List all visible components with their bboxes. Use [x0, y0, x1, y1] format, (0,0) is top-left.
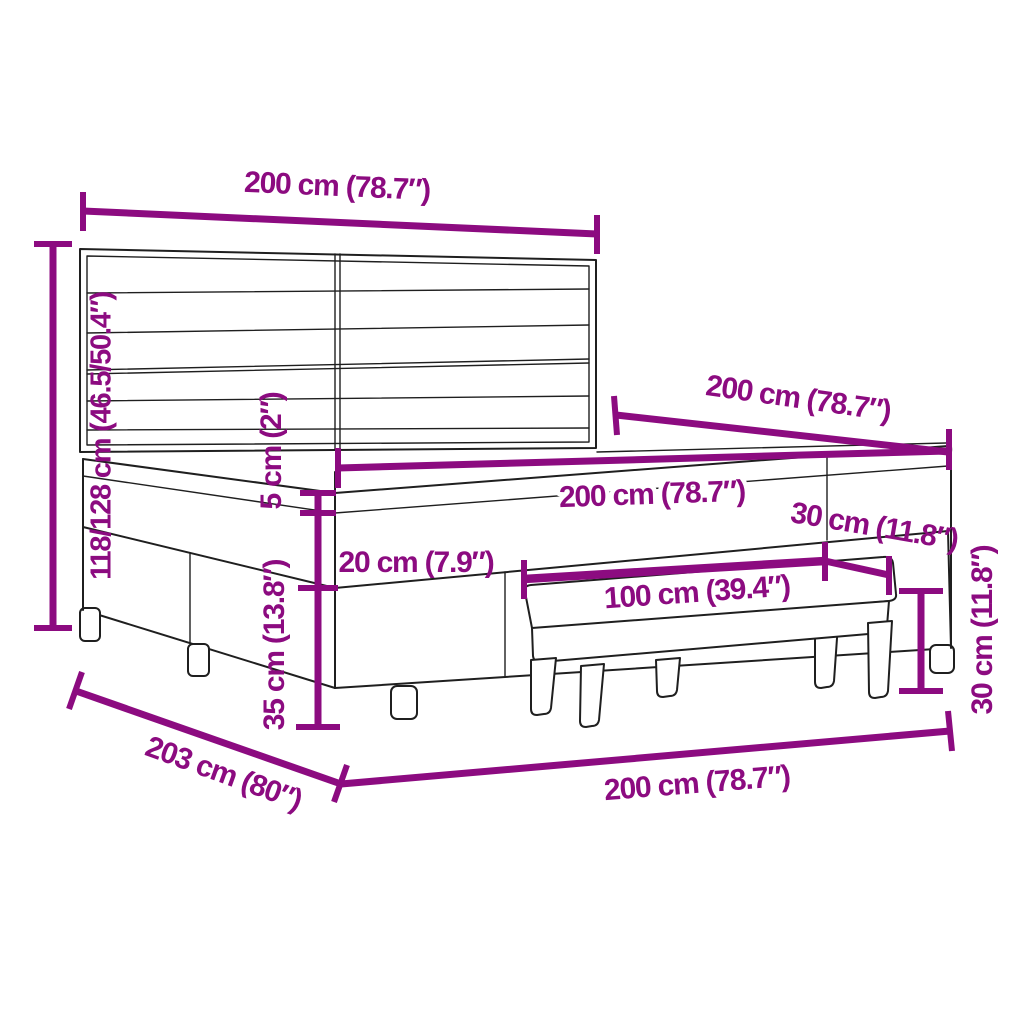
label-bed-height: 118/128 cm (46.5/50.4″) — [86, 292, 118, 580]
bench-leg — [868, 621, 892, 698]
bench-leg — [531, 658, 556, 715]
label-topper-thickness: 5 cm (2″) — [255, 392, 288, 509]
label-headboard-width: 200 cm (78.7″) — [243, 166, 430, 207]
bed-leg — [391, 686, 417, 719]
bed-structure — [80, 249, 954, 727]
headboard — [80, 249, 596, 452]
bed-dimension-diagram: 200 cm (78.7″) 118/128 cm (46.5/50.4″) 2… — [0, 0, 1024, 1024]
label-mattress-width: 200 cm (78.7″) — [558, 475, 745, 514]
label-bed-length: 200 cm (78.7″) — [704, 369, 893, 428]
dim-height-stack — [296, 493, 340, 727]
bed-leg — [188, 644, 209, 676]
label-mattress-thickness: 20 cm (7.9″) — [338, 546, 493, 579]
label-frame-width: 200 cm (78.7″) — [603, 760, 791, 808]
bed-leg — [80, 608, 100, 641]
bench-leg — [580, 664, 604, 727]
dim-bed-height — [34, 244, 72, 628]
bed-leg — [930, 645, 954, 673]
diagram-canvas: 200 cm (78.7″) 118/128 cm (46.5/50.4″) 2… — [0, 0, 1024, 1024]
label-bench-height: 30 cm (11.8″) — [966, 545, 999, 714]
dim-bench-height — [899, 591, 943, 691]
label-base-height: 35 cm (13.8″) — [258, 560, 291, 731]
bench-leg — [656, 658, 680, 697]
label-bench-depth: 30 cm (11.8″) — [788, 496, 960, 556]
